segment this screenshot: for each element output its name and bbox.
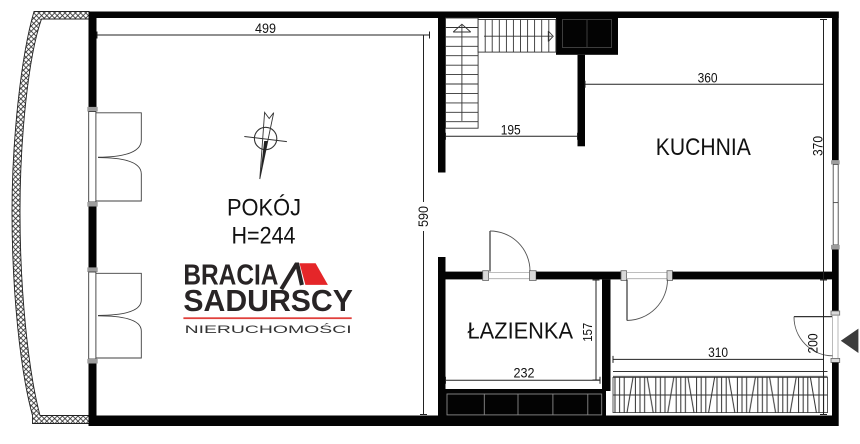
svg-text:195: 195 <box>501 122 521 137</box>
svg-text:499: 499 <box>255 21 276 36</box>
svg-text:POKÓJ: POKÓJ <box>227 194 301 221</box>
svg-text:SADURSCY: SADURSCY <box>183 284 353 318</box>
svg-text:590: 590 <box>416 206 431 227</box>
svg-text:310: 310 <box>708 345 728 360</box>
svg-text:ŁAZIENKA: ŁAZIENKA <box>468 318 574 344</box>
svg-text:200: 200 <box>806 334 821 354</box>
svg-text:360: 360 <box>698 70 718 85</box>
svg-text:H=244: H=244 <box>232 223 296 250</box>
svg-text:NIERUCHOMOŚCI: NIERUCHOMOŚCI <box>185 323 352 336</box>
svg-text:370: 370 <box>811 136 826 156</box>
svg-text:KUCHNIA: KUCHNIA <box>656 134 752 161</box>
svg-text:157: 157 <box>580 323 595 342</box>
svg-text:232: 232 <box>514 366 535 381</box>
